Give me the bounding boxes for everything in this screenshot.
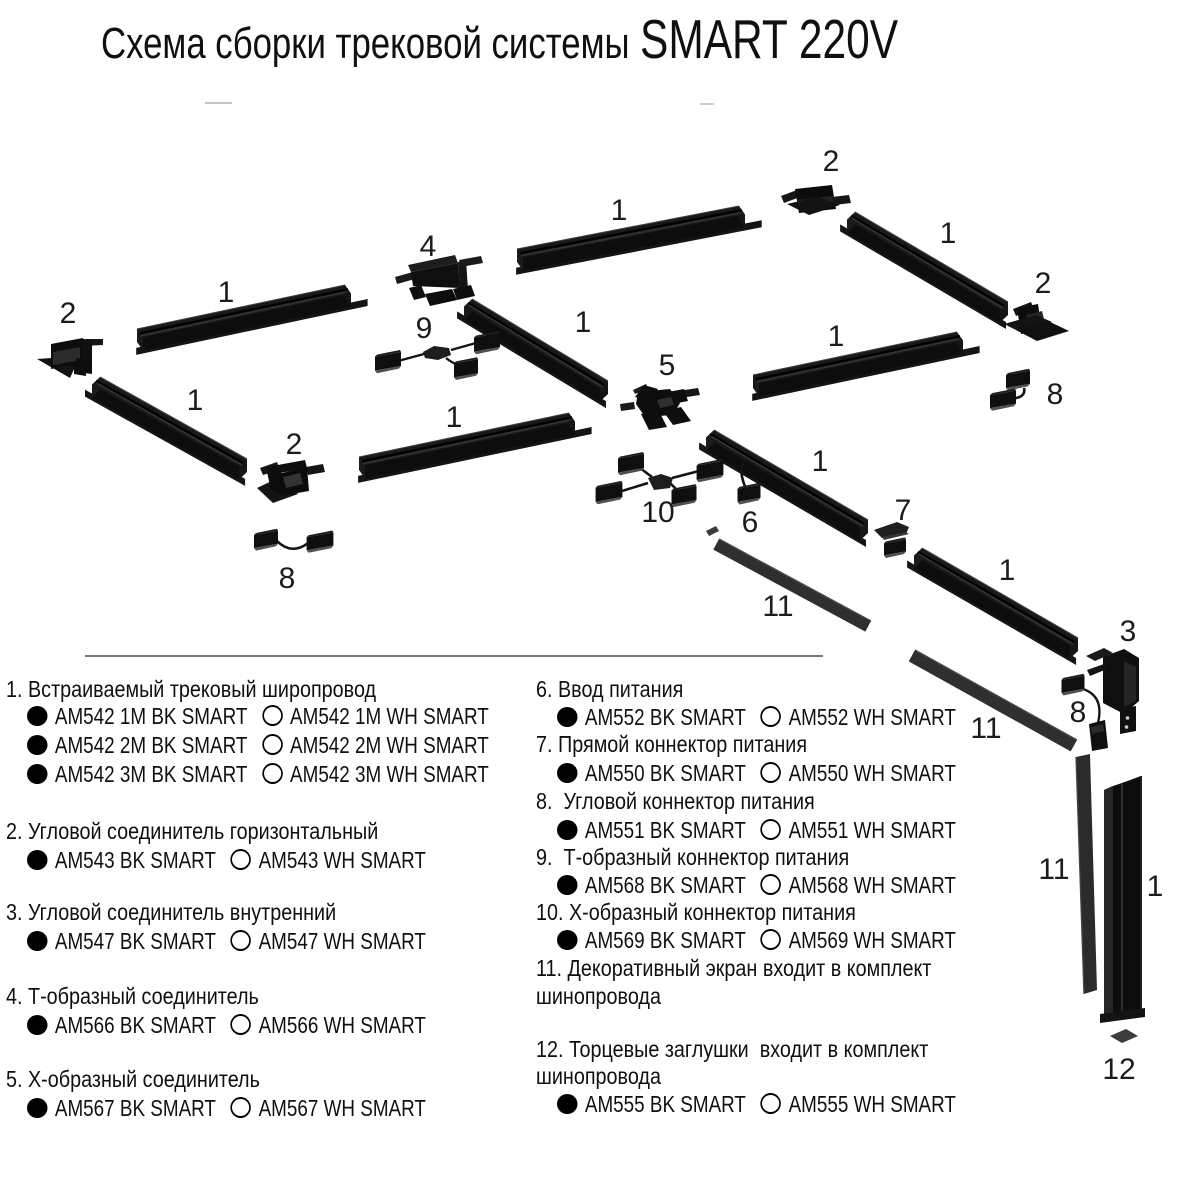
svg-text:11: 11	[970, 712, 1001, 745]
svg-text:6: 6	[742, 506, 759, 539]
svg-text:2: 2	[1035, 267, 1052, 300]
svg-text:1: 1	[1147, 870, 1164, 903]
svg-text:1: 1	[812, 445, 829, 478]
svg-text:11: 11	[762, 590, 793, 623]
svg-text:1: 1	[575, 306, 592, 339]
svg-text:10: 10	[641, 496, 674, 529]
svg-text:1: 1	[828, 320, 845, 353]
svg-text:1: 1	[446, 401, 463, 434]
svg-text:2: 2	[823, 145, 840, 178]
svg-text:2: 2	[286, 428, 303, 461]
svg-text:12: 12	[1102, 1053, 1135, 1086]
svg-text:7: 7	[895, 494, 912, 527]
svg-text:3: 3	[1120, 615, 1137, 648]
svg-text:8: 8	[1047, 378, 1064, 411]
svg-text:1: 1	[187, 384, 204, 417]
svg-text:1: 1	[218, 276, 235, 309]
svg-text:11: 11	[1038, 853, 1069, 886]
svg-text:1: 1	[940, 217, 957, 250]
svg-text:8: 8	[279, 562, 296, 595]
svg-text:2: 2	[60, 297, 77, 330]
svg-text:5: 5	[659, 349, 676, 382]
svg-text:8: 8	[1070, 696, 1087, 729]
svg-text:9: 9	[416, 312, 433, 345]
svg-text:1: 1	[999, 554, 1016, 587]
svg-text:4: 4	[420, 230, 437, 263]
svg-text:1: 1	[611, 194, 628, 227]
